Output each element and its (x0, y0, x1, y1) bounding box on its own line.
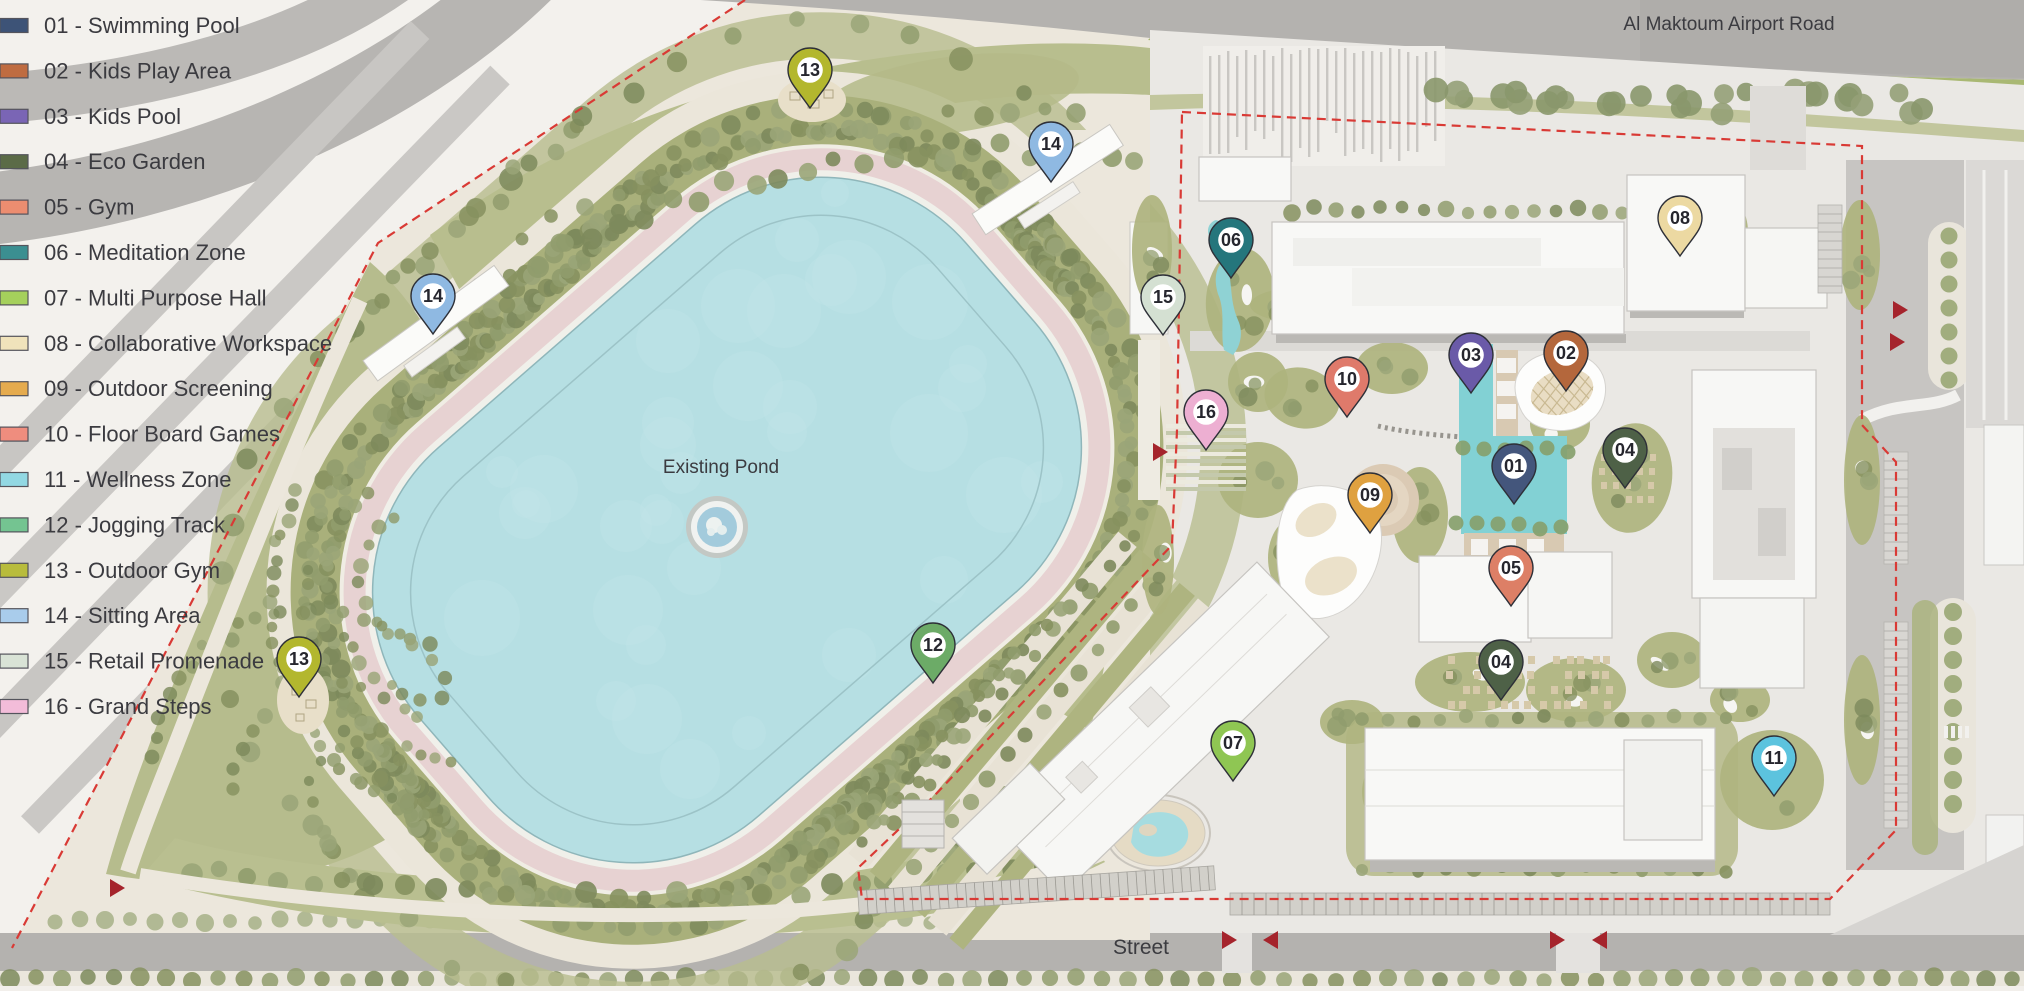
svg-text:04: 04 (1491, 652, 1511, 672)
svg-text:05 - Gym: 05 - Gym (44, 195, 134, 220)
svg-text:03 - Kids Pool: 03 - Kids Pool (44, 104, 181, 129)
svg-text:12: 12 (923, 635, 943, 655)
svg-text:13: 13 (289, 649, 309, 669)
svg-text:15: 15 (1153, 287, 1173, 307)
svg-text:04: 04 (1615, 440, 1635, 460)
svg-text:13: 13 (800, 60, 820, 80)
svg-text:03: 03 (1461, 345, 1481, 365)
svg-text:11: 11 (1764, 748, 1783, 768)
svg-text:09 - Outdoor Screening: 09 - Outdoor Screening (44, 376, 273, 401)
svg-text:16 - Grand Steps: 16 - Grand Steps (44, 694, 212, 719)
svg-text:08: 08 (1670, 208, 1690, 228)
svg-text:14 - Sitting Area: 14 - Sitting Area (44, 603, 201, 628)
svg-text:06 - Meditation Zone: 06 - Meditation Zone (44, 240, 246, 265)
svg-text:Existing Pond: Existing Pond (663, 457, 779, 478)
svg-text:14: 14 (423, 286, 443, 306)
svg-text:01 - Swimming Pool: 01 - Swimming Pool (44, 13, 240, 38)
svg-text:11 - Wellness Zone: 11 - Wellness Zone (44, 467, 232, 492)
svg-text:08 - Collaborative Workspace: 08 - Collaborative Workspace (44, 331, 332, 356)
svg-text:Al Maktoum Airport Road: Al Maktoum Airport Road (1623, 14, 1834, 35)
svg-text:16: 16 (1196, 402, 1216, 422)
svg-text:06: 06 (1221, 230, 1241, 250)
svg-text:07: 07 (1223, 733, 1243, 753)
svg-text:02 - Kids Play Area: 02 - Kids Play Area (44, 58, 232, 83)
svg-text:12 - Jogging Track: 12 - Jogging Track (44, 512, 226, 537)
svg-text:14: 14 (1041, 134, 1061, 154)
svg-text:02: 02 (1556, 343, 1576, 363)
svg-text:10: 10 (1337, 369, 1357, 389)
svg-text:10 - Floor Board Games: 10 - Floor Board Games (44, 422, 280, 447)
svg-text:15 - Retail Promenade: 15 - Retail Promenade (44, 649, 264, 674)
svg-text:09: 09 (1360, 485, 1380, 505)
svg-text:05: 05 (1501, 558, 1521, 578)
svg-text:01: 01 (1504, 456, 1524, 476)
svg-text:07 - Multi Purpose Hall: 07 - Multi Purpose Hall (44, 285, 267, 310)
svg-text:13 - Outdoor Gym: 13 - Outdoor Gym (44, 558, 220, 583)
svg-text:04 - Eco Garden: 04 - Eco Garden (44, 149, 205, 174)
svg-text:Street: Street (1113, 936, 1169, 959)
